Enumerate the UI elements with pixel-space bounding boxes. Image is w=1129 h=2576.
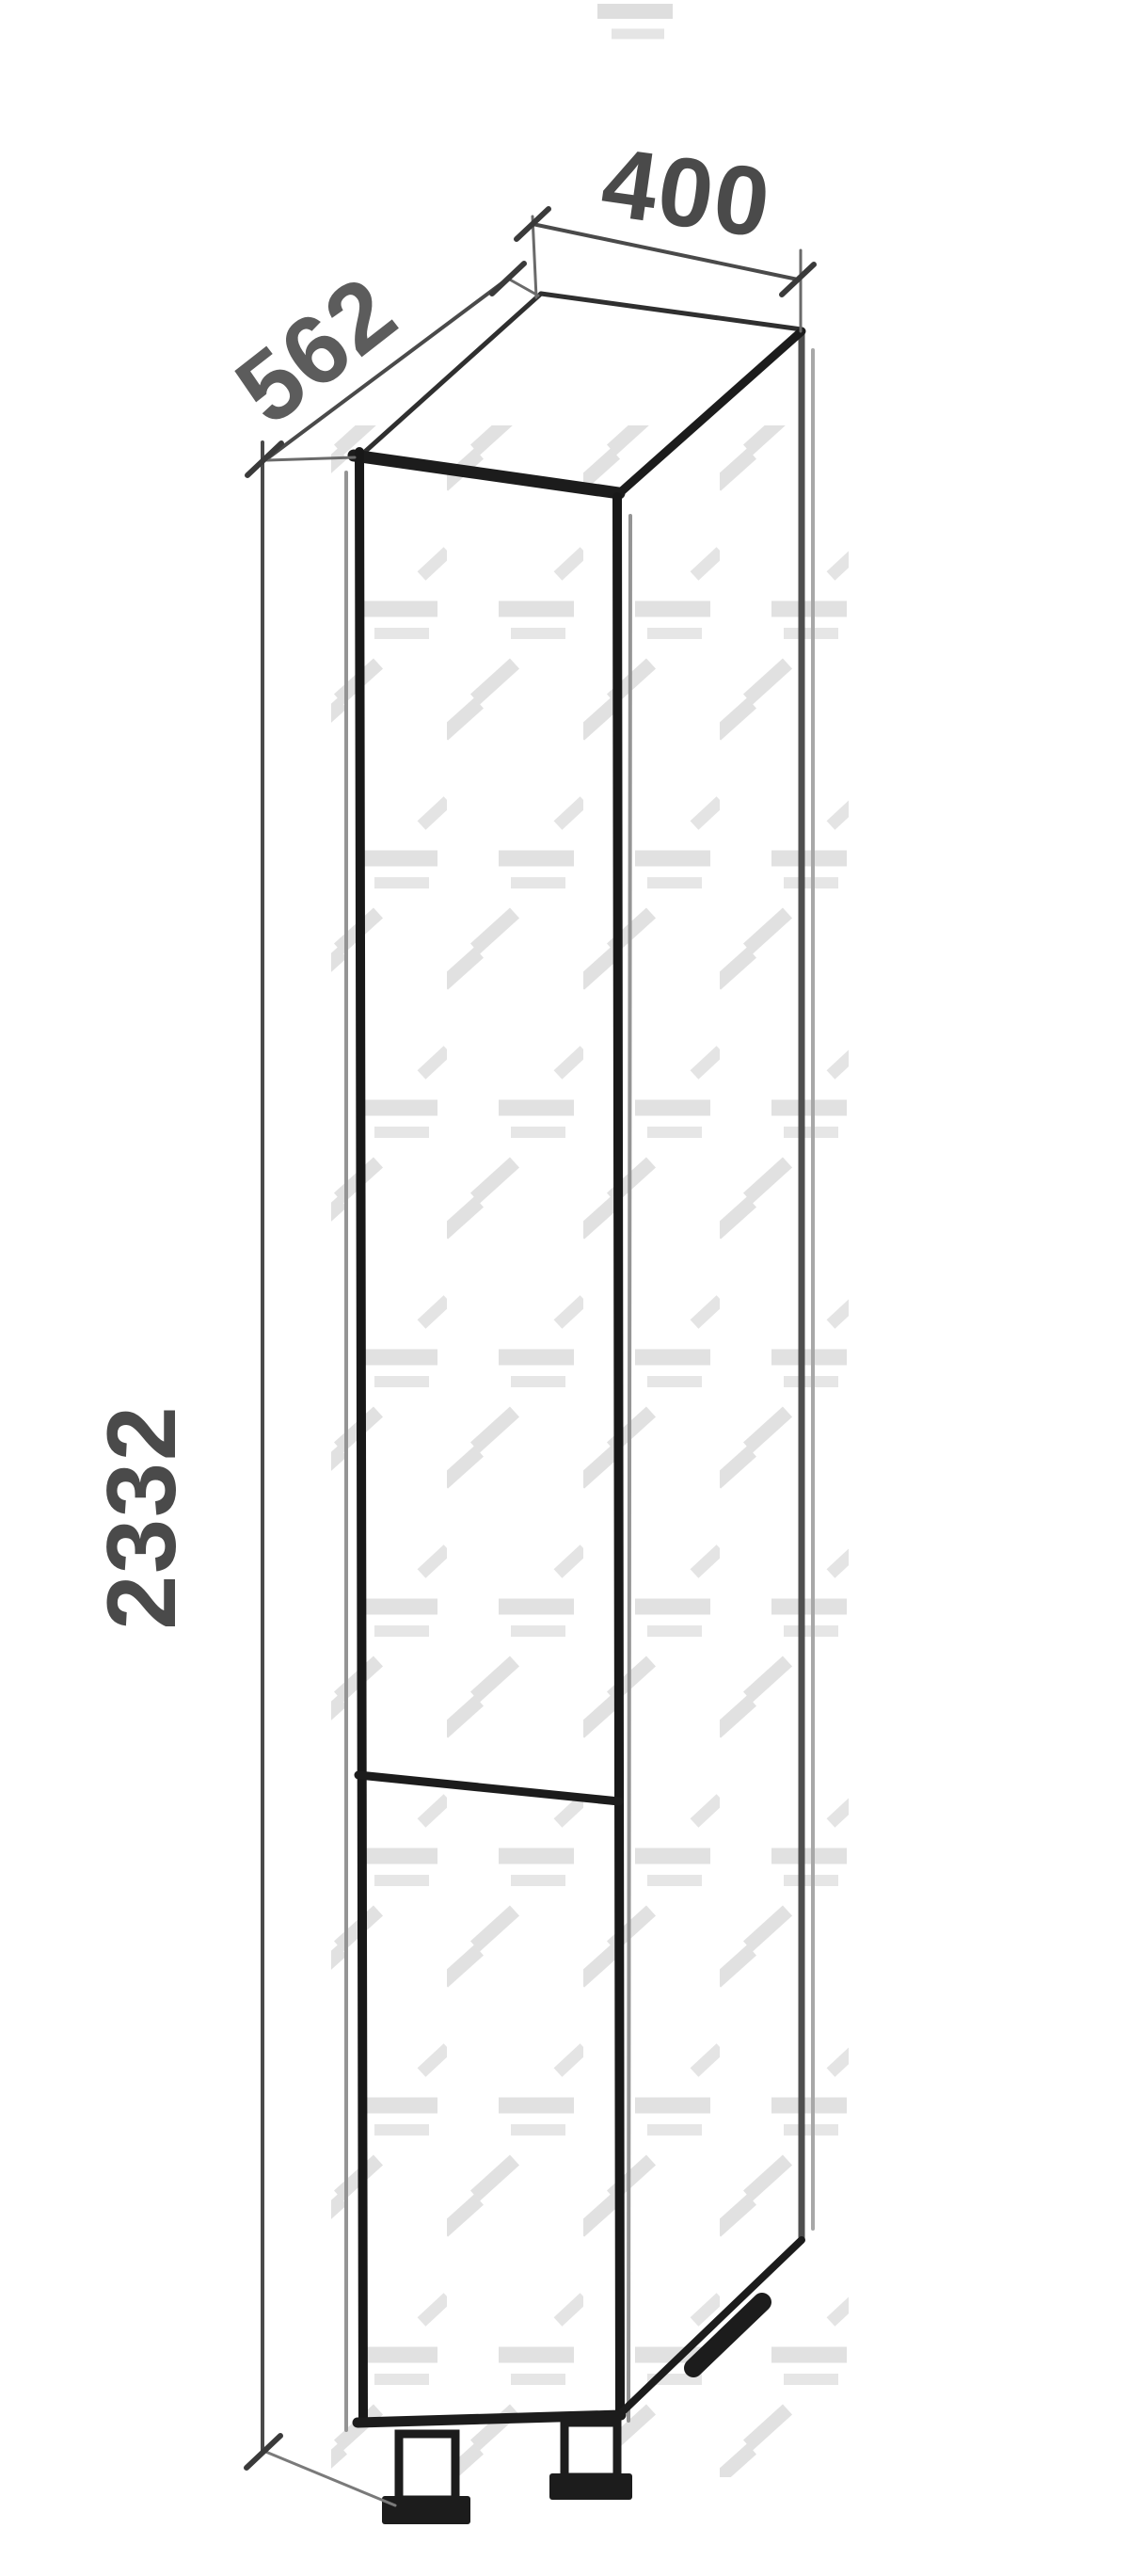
depth-extension-line-back xyxy=(508,279,538,296)
watermark-pattern-area xyxy=(331,425,849,2477)
door-right-edge xyxy=(617,497,620,2413)
front-right-foot xyxy=(549,2423,632,2500)
height-dimension-label: 2332 xyxy=(87,1404,197,1629)
depth-dimension-label: 562 xyxy=(216,255,417,445)
width-extension-line-left xyxy=(533,216,536,297)
tick-width-right xyxy=(782,264,814,295)
carcass-front-right-edge xyxy=(628,516,630,2421)
cabinet-technical-drawing: 400 562 2332 xyxy=(0,0,1129,2576)
door-left-edge xyxy=(359,452,363,2421)
front-left-foot xyxy=(382,2434,470,2524)
width-dimension-label: 400 xyxy=(596,127,778,259)
watermark-top-fragment xyxy=(597,11,673,34)
drawing-canvas: 400 562 2332 xyxy=(0,0,1129,2576)
tick-depth-back xyxy=(492,264,524,294)
